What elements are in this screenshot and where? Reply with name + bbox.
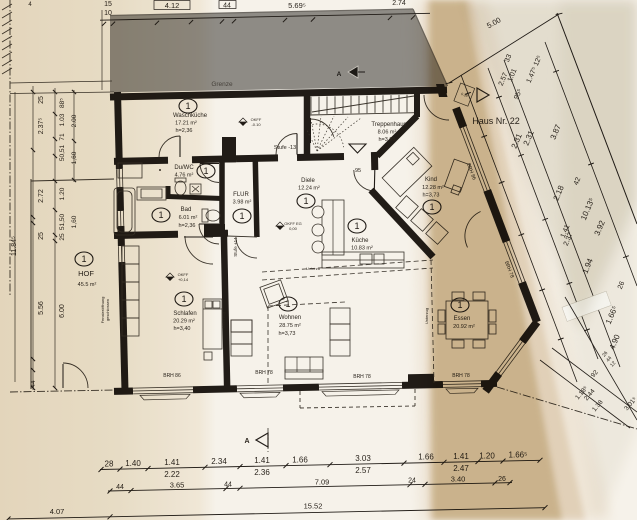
svg-text:3.98 m²: 3.98 m² [233, 200, 252, 206]
svg-text:Treppenhaus: Treppenhaus [371, 122, 406, 128]
svg-text:44: 44 [224, 482, 232, 489]
svg-text:15.52: 15.52 [304, 502, 323, 511]
svg-text:0,00: 0,00 [289, 226, 298, 231]
svg-text:BRH 78: BRH 78 [353, 374, 371, 380]
svg-text:Wohnen: Wohnen [279, 315, 301, 321]
svg-text:3.03: 3.03 [355, 454, 371, 463]
svg-text:1.41: 1.41 [254, 456, 270, 465]
svg-text:12.24 m²: 12.24 m² [298, 186, 320, 192]
svg-text:2.36: 2.36 [254, 468, 270, 477]
svg-text:28.75 m²: 28.75 m² [279, 323, 301, 329]
svg-text:h=3,95: h=3,95 [379, 137, 396, 143]
svg-text:Stufe -13: Stufe -13 [274, 145, 296, 151]
svg-text:Küche: Küche [351, 238, 369, 244]
svg-text:1.66: 1.66 [292, 455, 308, 464]
svg-text:7.09: 7.09 [315, 478, 330, 487]
svg-text:Stufe +14: Stufe +14 [233, 237, 238, 257]
svg-text:-0.10: -0.10 [251, 122, 261, 127]
svg-text:95: 95 [355, 168, 361, 174]
svg-text:Unterzug: Unterzug [221, 312, 226, 328]
svg-text:2.74: 2.74 [392, 0, 406, 7]
svg-text:A: A [337, 71, 342, 78]
svg-text:44: 44 [223, 3, 231, 10]
svg-text:h=3,73: h=3,73 [279, 331, 296, 337]
svg-text:8.06 m²: 8.06 m² [378, 130, 397, 136]
svg-text:1: 1 [354, 221, 359, 231]
svg-text:A: A [244, 438, 249, 445]
svg-text:2.57: 2.57 [355, 466, 371, 475]
svg-text:FLUR: FLUR [233, 192, 249, 198]
svg-text:1: 1 [239, 211, 244, 221]
svg-text:1: 1 [303, 196, 308, 206]
svg-text:BRH 78: BRH 78 [255, 370, 273, 376]
svg-text:5.69⁵: 5.69⁵ [288, 1, 306, 10]
svg-text:Diele: Diele [301, 178, 315, 184]
svg-text:10.83 m²: 10.83 m² [351, 246, 373, 252]
svg-text:24: 24 [408, 478, 416, 485]
